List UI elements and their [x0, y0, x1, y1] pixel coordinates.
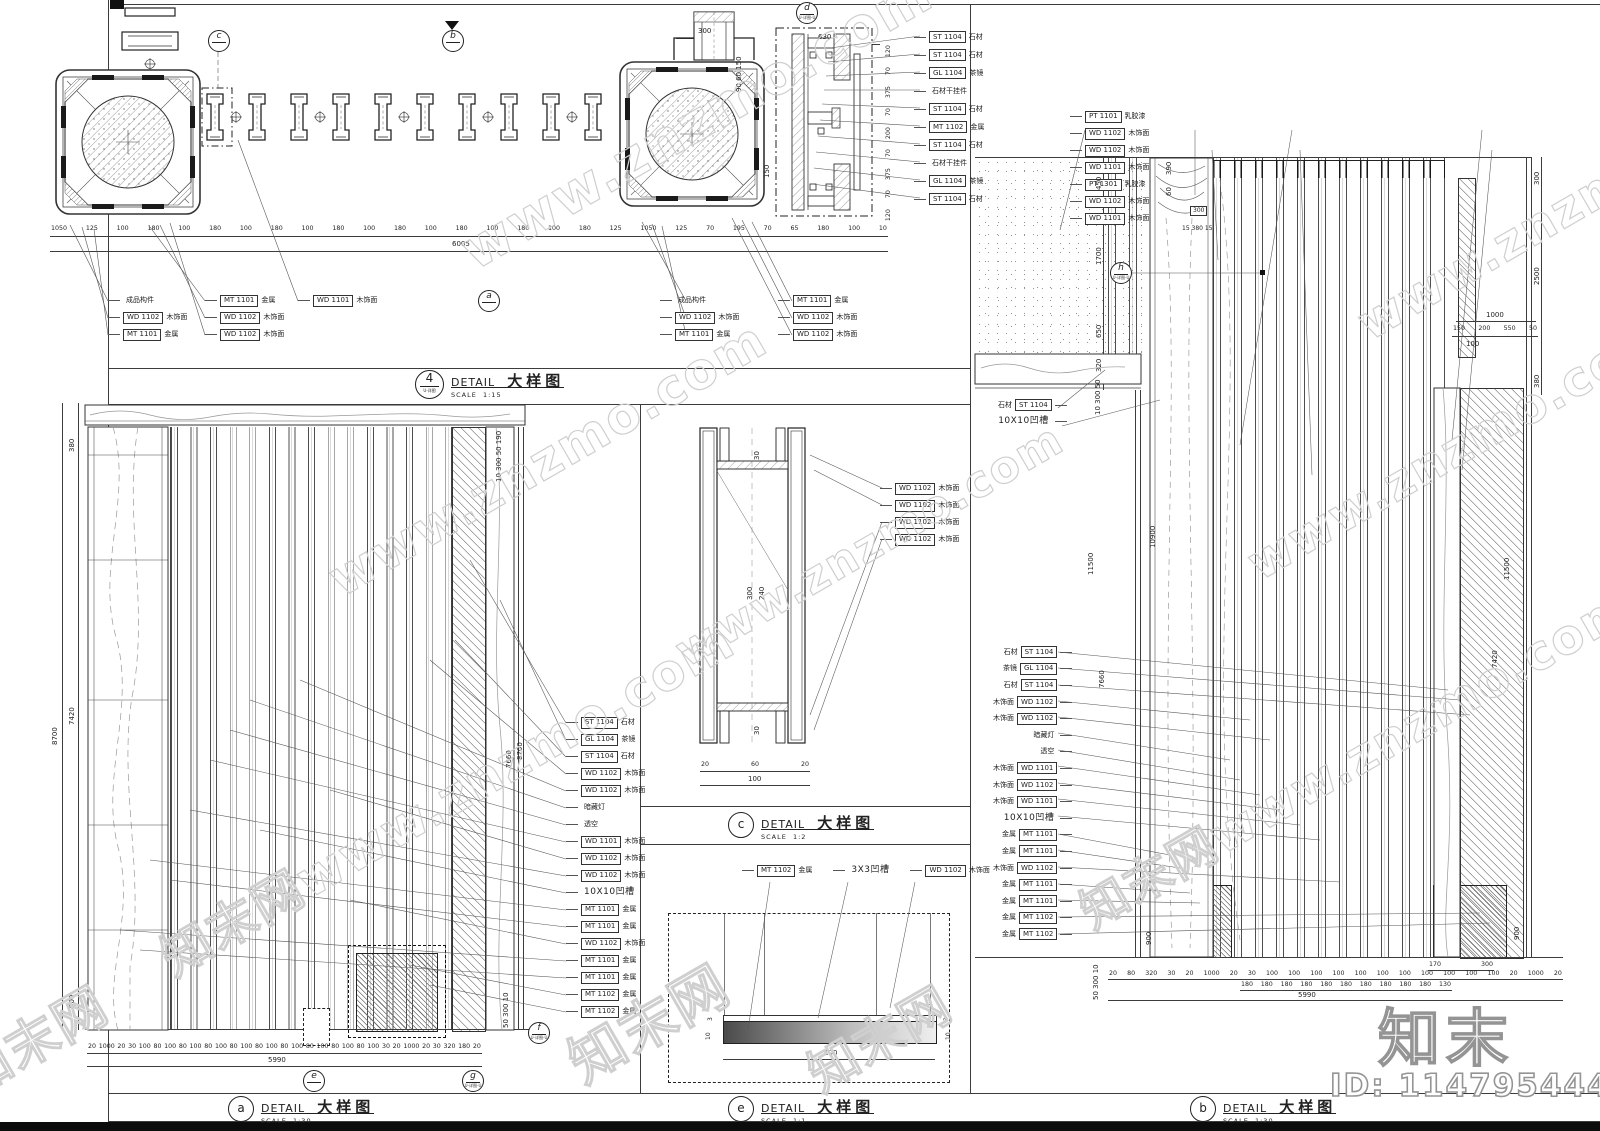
dim-value: 100	[239, 226, 253, 232]
dim-value: 20	[1229, 971, 1239, 977]
material-tag: 透空	[990, 744, 1072, 761]
material-tag-label: 3X3凹槽	[851, 866, 889, 875]
material-tag-code: PT 1301	[1085, 179, 1122, 191]
material-tag: MT 1102金属	[914, 118, 987, 136]
dim-value: 100	[301, 226, 315, 232]
dim-value: 100	[1442, 971, 1456, 977]
dim-value: 180	[1299, 982, 1313, 988]
material-tag-code: MT 1101	[793, 295, 831, 307]
dim-value: 320	[442, 1044, 456, 1050]
material-tag: WD 1102木饰面	[566, 935, 648, 952]
detail-b-total-line	[1108, 1000, 1563, 1001]
material-tag: MT 1102金属	[990, 926, 1072, 943]
dim-value: 100	[362, 226, 376, 232]
dim-320: 320	[1096, 359, 1103, 372]
detail-b-title-text: DETAIL大样图 SCALE 1:30	[1223, 1096, 1336, 1125]
dim-value: 30	[1247, 971, 1257, 977]
dim-7420b: 7420	[1492, 650, 1499, 668]
material-tag-label: 金属	[970, 124, 984, 131]
material-tag-label: 石材	[1004, 682, 1018, 689]
material-tag: WD 1102木饰面	[1070, 125, 1152, 142]
material-tag: ST 1104石材	[914, 28, 987, 46]
material-tag-label: 木饰面	[263, 331, 284, 338]
section-marker-a: a	[478, 290, 500, 312]
dim-value: 100	[1486, 971, 1500, 977]
material-tag-label: 石材	[969, 196, 983, 203]
col-b-tags-right: MT 1101金属WD 1102木饰面WD 1102木饰面	[778, 292, 860, 343]
dim-c-30-bot: 30	[754, 726, 761, 735]
dim-value: 180	[816, 226, 830, 232]
material-tag-label: 石材	[969, 106, 983, 113]
col-a-tags-mid: MT 1101金属WD 1102木饰面WD 1102木饰面	[205, 292, 287, 343]
detail4-title-bubble: 4U-详图	[415, 370, 444, 399]
material-tag-code: MT 1101	[1019, 895, 1057, 907]
dim-value: 180	[270, 226, 284, 232]
dim-value: 100	[1331, 971, 1345, 977]
material-tag: WD 1101木饰面	[990, 793, 1072, 810]
material-tag-label: 木饰面	[1128, 164, 1149, 171]
material-tag: WD 1102木饰面	[205, 309, 287, 326]
dim-value: 20	[421, 1044, 431, 1050]
detail-a-dim-line-outer	[62, 403, 63, 1030]
dim-value: 80	[279, 1044, 289, 1050]
material-tag-code: ST 1104	[929, 193, 966, 205]
material-tag: ST 1104石材	[990, 644, 1072, 661]
dim-value: 100	[316, 1044, 330, 1050]
material-tag-code: MT 1101	[581, 904, 619, 916]
material-tag: WD 1102木饰面	[566, 765, 648, 782]
dim-value: 20	[1509, 971, 1519, 977]
dim-value: 100	[1420, 971, 1434, 977]
dim-value: 130	[1438, 982, 1452, 988]
dim-value: 30	[432, 1044, 442, 1050]
material-tag-label: 金属	[798, 867, 812, 874]
dim-wood-300: 300	[1190, 206, 1207, 216]
material-tag-label: 10X10凹槽	[584, 888, 635, 897]
material-tag: 石材干挂件	[914, 154, 987, 172]
material-tag-code: WD 1102	[793, 312, 833, 324]
detail-b-upper-tags: ST 1104石材10X10凹槽	[995, 397, 1067, 430]
material-tag: WD 1101木饰面	[298, 292, 380, 309]
dim-bot-rot: 50 300 10	[503, 992, 510, 1028]
material-tag-label: 木饰面	[938, 519, 959, 526]
dim-value: 100	[485, 226, 499, 232]
material-tag-label: 木饰面	[263, 314, 284, 321]
material-tag-label: 暗藏灯	[584, 804, 605, 811]
section-marker-d: dU-详图-U	[796, 2, 818, 24]
material-tag-label: 金属	[1002, 931, 1016, 938]
dim-value: 180	[1398, 982, 1412, 988]
dim-b-bot-rot: 50 300 10	[1093, 964, 1100, 1000]
material-tag: WD 1102木饰面	[1070, 193, 1152, 210]
dim-630: 630	[818, 34, 831, 41]
material-tag-label: 木饰面	[938, 502, 959, 509]
dim-value: 20	[700, 762, 710, 768]
slat-tag: WD 1101木饰面	[298, 292, 380, 309]
dim-value: 100	[341, 1044, 355, 1050]
dim-value: 100	[116, 226, 130, 232]
detail-b-dim-line2	[1240, 990, 1452, 991]
dim-value: 1000	[402, 1044, 420, 1050]
dim-value: 170	[1428, 962, 1442, 968]
material-tag-code: GL 1104	[581, 734, 618, 746]
dim-wood-380: 15 380 15	[1182, 226, 1213, 232]
dim-value: 100	[138, 1044, 152, 1050]
dim-value: 80	[178, 1044, 188, 1050]
material-tag-label: 茶镜	[621, 736, 635, 743]
material-tag-code: WD 1102	[793, 329, 833, 341]
detail-b-dim-row2: 180180180180180180180180180180130	[1240, 982, 1452, 988]
material-tag-code: WD 1102	[581, 768, 621, 780]
material-tag-code: WD 1102	[1085, 196, 1125, 208]
dim-value: 20	[1553, 971, 1563, 977]
material-tag: GL 1104茶镜	[914, 172, 987, 190]
dim-8700b: 8700	[517, 742, 524, 760]
dim-value: 100	[366, 1044, 380, 1050]
dim-value: 70	[886, 149, 892, 157]
detail-e-total: 100	[824, 1050, 837, 1057]
asset-id-text: ID: 1147954446	[1330, 1068, 1600, 1104]
dim-value: 1000	[1527, 971, 1545, 977]
material-tag-code: MT 1101	[123, 329, 161, 341]
dim-value: 180	[393, 226, 407, 232]
dim-value: 100	[290, 1044, 304, 1050]
detail-b-total-dim: 5990	[1298, 992, 1316, 999]
material-tag-code: WD 1102	[581, 853, 621, 865]
material-tag-label: 木饰面	[166, 314, 187, 321]
divider-h-title4-top	[108, 368, 970, 369]
dim-450: 450	[1096, 177, 1103, 190]
material-tag-code: WD 1102	[581, 938, 621, 950]
material-tag-code: WD 1101	[1085, 213, 1125, 225]
material-tag: WD 1102木饰面	[566, 782, 648, 799]
material-tag: WD 1102木饰面	[205, 326, 287, 343]
material-tag-label: 石材	[1004, 649, 1018, 656]
material-tag-label: 木饰面	[993, 715, 1014, 722]
dim-value: 180	[331, 226, 345, 232]
material-tag-label: 木饰面	[624, 872, 645, 879]
material-tag: ST 1104石材	[914, 136, 987, 154]
dim-c-240: 240	[759, 587, 766, 600]
detail4-total-dim: 6005	[452, 241, 470, 248]
dim-value: 100	[163, 1044, 177, 1050]
dim-value: 180	[455, 226, 469, 232]
material-tag-label: 石材	[621, 753, 635, 760]
material-tag: ST 1104石材	[566, 748, 648, 765]
material-tag: 透空	[566, 816, 648, 833]
material-tag-label: 木饰面	[836, 314, 857, 321]
material-tag-label: 木饰面	[993, 699, 1014, 706]
material-tag: MT 1102金属	[990, 910, 1072, 927]
dim-value: 100	[265, 1044, 279, 1050]
dim-value: 20	[1108, 971, 1118, 977]
material-tag: ST 1104石材	[914, 46, 987, 64]
material-tag-label: 木饰面	[993, 765, 1014, 772]
dim-11500-left: 11500	[1088, 553, 1095, 575]
material-tag-code: WD 1102	[581, 870, 621, 882]
dim-value: 10	[878, 226, 888, 232]
material-tag-label: 金属	[622, 991, 636, 998]
dim-value: 100	[1354, 971, 1368, 977]
detail-e-title: e DETAIL大样图 SCALE 1:1	[728, 1096, 874, 1125]
dim-value: 200	[1477, 326, 1491, 332]
material-tag: WD 1102木饰面	[778, 326, 860, 343]
material-tag-code: MT 1101	[1019, 829, 1057, 841]
material-tag-code: WD 1102	[895, 483, 935, 495]
material-tag: MT 1101金属	[660, 326, 742, 343]
dim-value: 375	[886, 86, 892, 98]
dim-value: 180	[578, 226, 592, 232]
dim-value: 100	[1309, 971, 1323, 977]
section-marker-h: hU-详图-U	[1110, 262, 1132, 284]
material-tag-code: ST 1104	[581, 751, 618, 763]
material-tag-label: 石材	[998, 402, 1012, 409]
material-tag-label: 木饰面	[1128, 198, 1149, 205]
material-tag-code: WD 1102	[1017, 779, 1057, 791]
material-tag: MT 1101金属	[566, 901, 648, 918]
material-tag: MT 1101金属	[990, 876, 1072, 893]
dim-value: 180	[1418, 982, 1432, 988]
material-tag-code: GL 1104	[929, 67, 966, 79]
dim-value: 150	[1452, 326, 1466, 332]
dim-11500-right: 11500	[1504, 558, 1511, 580]
material-tag-code: WD 1102	[1085, 145, 1125, 157]
dim-value: 120	[886, 209, 892, 221]
detail-c-tags-top: WD 1102木饰面WD 1102木饰面WD 1102木饰面WD 1102木饰面	[880, 480, 962, 548]
dim-e-10b: 10	[946, 1032, 952, 1040]
material-tag: MT 1101金属	[990, 893, 1072, 910]
material-tag-code: MT 1102	[1019, 912, 1057, 924]
material-tag-label: 石材	[969, 34, 983, 41]
material-tag-code: ST 1104	[929, 139, 966, 151]
dim-value: 180	[457, 1044, 471, 1050]
material-tag: WD 1102木饰面	[880, 531, 962, 548]
material-tag: 3X3凹槽	[833, 862, 892, 879]
material-tag: WD 1102木饰面	[990, 777, 1072, 794]
material-tag-label: 木饰面	[1128, 147, 1149, 154]
dim-value: 180	[1339, 982, 1353, 988]
detail-a-dim-line-inner	[78, 403, 79, 1030]
dim-390: 390	[1166, 162, 1173, 175]
dim-value: 30	[1166, 971, 1176, 977]
material-tag: WD 1102木饰面	[880, 480, 962, 497]
material-tag: MT 1101金属	[205, 292, 287, 309]
dim-value: 100	[424, 226, 438, 232]
material-tag: 暗藏灯	[566, 799, 648, 816]
material-tag-label: 乳胶漆	[1125, 113, 1146, 120]
dim-value: 180	[1359, 982, 1373, 988]
material-tag-code: ST 1104	[1015, 399, 1052, 411]
material-tag-code: ST 1104	[1021, 646, 1058, 658]
dim-e-3b: 3	[708, 1017, 714, 1021]
dim-value: 80	[305, 1044, 315, 1050]
dim-1700: 1700	[1096, 247, 1103, 265]
material-tag-label: 木饰面	[993, 798, 1014, 805]
detail-c-total-line	[700, 785, 810, 786]
material-tag: GL 1104茶镜	[990, 661, 1072, 678]
material-tag: WD 1102木饰面	[108, 309, 190, 326]
detail4-dim-row: 1050125100180100180100180100180100180100…	[50, 226, 888, 232]
material-tag: WD 1102木饰面	[778, 309, 860, 326]
dim-value: 180	[516, 226, 530, 232]
material-tag-label: 金属	[622, 923, 636, 930]
detail-b-subdims: 170300	[1428, 962, 1494, 968]
section-d-right-dims: 12070375702007037570120	[884, 48, 894, 218]
dim-value: 125	[609, 226, 623, 232]
dim-value: 1000	[98, 1044, 116, 1050]
material-tag: PT 1301乳胶漆	[1070, 176, 1152, 193]
material-tag: 成品构件	[660, 292, 742, 309]
material-tag-code: WD 1101	[581, 836, 621, 848]
material-tag-label: 金属	[1002, 831, 1016, 838]
material-tag-code: ST 1104	[1021, 679, 1058, 691]
dim-value: 1050	[50, 226, 68, 232]
material-tag: MT 1101金属	[108, 326, 190, 343]
material-tag-label: 木饰面	[1128, 215, 1149, 222]
detail4-title: 4U-详图 DETAIL大样图 SCALE 1:15	[415, 370, 564, 399]
dim-value: 80	[356, 1044, 366, 1050]
material-tag-code: MT 1101	[1019, 879, 1057, 891]
detail-c-title: c DETAIL大样图 SCALE 1:2	[728, 812, 874, 841]
material-tag: WD 1102木饰面	[660, 309, 742, 326]
material-tag-code: WD 1102	[675, 312, 715, 324]
detail-e-tags: MT 1102金属3X3凹槽WD 1102木饰面	[742, 862, 993, 879]
dim-150: 150	[764, 165, 771, 178]
material-tag-code: MT 1101	[1019, 845, 1057, 857]
material-tag-label: 金属	[1002, 881, 1016, 888]
material-tag-code: WD 1102	[895, 534, 935, 546]
dim-r1000: 1000	[1486, 312, 1504, 319]
material-tag-code: MT 1101	[581, 955, 619, 967]
material-tag: MT 1101金属	[990, 843, 1072, 860]
material-tag-code: MT 1102	[581, 1006, 619, 1018]
dim-value: 20	[116, 1044, 126, 1050]
material-tag: ST 1104石材	[995, 397, 1067, 414]
dim-value: 60	[750, 762, 760, 768]
detail-a-title-text: DETAIL大样图 SCALE 1:30	[261, 1096, 374, 1125]
dim-r2500: 2500	[1534, 267, 1541, 285]
dim-value: 1050	[639, 226, 657, 232]
material-tag-code: GL 1104	[1020, 663, 1057, 675]
material-tag: WD 1101木饰面	[990, 760, 1072, 777]
detail-b-title: b DETAIL大样图 SCALE 1:30	[1190, 1096, 1336, 1125]
material-tag: MT 1101金属	[566, 952, 648, 969]
material-tag-code: MT 1101	[581, 972, 619, 984]
dim-value: 100	[1376, 971, 1390, 977]
material-tag: WD 1102木饰面	[1070, 142, 1152, 159]
detail-c-title-bubble: c	[728, 812, 754, 838]
detail-b-tags: ST 1104石材GL 1104茶镜ST 1104石材WD 1102木饰面WD …	[990, 644, 1072, 943]
detail-a-leader-lines	[100, 420, 640, 1040]
material-tag-label: 木饰面	[1128, 130, 1149, 137]
dim-value: 70	[886, 68, 892, 76]
material-tag-code: WD 1101	[313, 295, 353, 307]
material-tag-label: 木饰面	[938, 485, 959, 492]
dim-value: 125	[674, 226, 688, 232]
material-tag-code: WD 1101	[1017, 796, 1057, 808]
detail-c-title-text: DETAIL大样图 SCALE 1:2	[761, 812, 874, 841]
detail-a-total-dim: 5990	[268, 1057, 286, 1064]
material-tag: WD 1102木饰面	[880, 497, 962, 514]
dim-900-right: 900	[1514, 927, 1521, 940]
material-tag-label: 石材	[621, 719, 635, 726]
dim-7660b: 7660	[1099, 670, 1106, 688]
dim-10900: 10900	[1150, 526, 1157, 548]
material-tag-label: 木饰面	[969, 867, 990, 874]
material-tag-code: WD 1102	[123, 312, 163, 324]
dim-value: 300	[1480, 962, 1494, 968]
material-tag-code: WD 1102	[581, 785, 621, 797]
dim-value: 100	[189, 1044, 203, 1050]
dim-380: 380	[69, 439, 76, 452]
material-tag-label: 金属	[261, 297, 275, 304]
material-tag: WD 1102木饰面	[990, 694, 1072, 711]
material-tag: WD 1101木饰面	[1070, 210, 1152, 227]
material-tag-label: 成品构件	[126, 297, 154, 304]
dim-value: 200	[886, 127, 892, 139]
material-tag-code: WD 1102	[220, 312, 260, 324]
dim-value: 80	[203, 1044, 213, 1050]
material-tag-code: WD 1101	[1085, 162, 1125, 174]
dim-value: 180	[1280, 982, 1294, 988]
detail-a-dim-row: 2010002030100801008010080100801008010080…	[87, 1044, 482, 1050]
material-tag: GL 1104茶镜	[914, 64, 987, 82]
detail-a-tags: ST 1104石材GL 1104茶镜ST 1104石材WD 1102木饰面WD …	[566, 714, 648, 1020]
dim-value: 100	[1464, 971, 1478, 977]
dim-e-10a: 10	[706, 1032, 712, 1040]
material-tag: WD 1101木饰面	[1070, 159, 1152, 176]
detail-e-title-bubble: e	[728, 1096, 754, 1122]
dim-900-left: 900	[1146, 932, 1153, 945]
detail-a-title-bubble: a	[228, 1096, 254, 1122]
material-tag: WD 1102木饰面	[566, 850, 648, 867]
material-tag: 10X10凹槽	[990, 810, 1072, 827]
material-tag: GL 1104茶镜	[566, 731, 648, 748]
material-tag: ST 1104石材	[990, 677, 1072, 694]
dim-value: 80	[330, 1044, 340, 1050]
dim-value: 195	[732, 226, 746, 232]
dim-value: 65	[789, 226, 799, 232]
dim-value: 125	[85, 226, 99, 232]
material-tag-label: 10X10凹槽	[998, 417, 1049, 426]
detail-b-top-tag-host: PT 1101乳胶漆WD 1102木饰面WD 1102木饰面WD 1101木饰面…	[1070, 108, 1152, 227]
dim-e-3a: 3	[726, 1001, 730, 1007]
dim-value: 180	[1240, 982, 1254, 988]
material-tag-label: 金属	[622, 974, 636, 981]
material-tag-label: 金属	[1002, 914, 1016, 921]
material-tag-code: MT 1101	[675, 329, 713, 341]
material-tag: MT 1102金属	[566, 986, 648, 1003]
material-tag: WD 1102木饰面	[880, 514, 962, 531]
detail-c-dim-line	[700, 771, 810, 772]
material-tag-label: 石材	[969, 142, 983, 149]
dim-10-300-50: 10 300 50	[1095, 379, 1102, 415]
dim-r300: 300	[1534, 172, 1541, 185]
dim-value: 100	[239, 1044, 253, 1050]
detail-e-leader-lines	[700, 878, 960, 1038]
detail-b-leader-lines	[1050, 110, 1600, 970]
col-a-tags-left: 成品构件WD 1102木饰面MT 1101金属	[108, 292, 190, 343]
dim-value: 180	[1260, 982, 1274, 988]
detail-a-title: a DETAIL大样图 SCALE 1:30	[228, 1096, 374, 1125]
material-tag-code: WD 1102	[1085, 128, 1125, 140]
dim-value: 20	[800, 762, 810, 768]
material-tag-label: 金属	[622, 1008, 636, 1015]
dim-value: 30	[127, 1044, 137, 1050]
detail-a-dim-line	[87, 1053, 482, 1054]
material-tag-code: PT 1101	[1085, 111, 1122, 123]
material-tag-label: 木饰面	[624, 770, 645, 777]
